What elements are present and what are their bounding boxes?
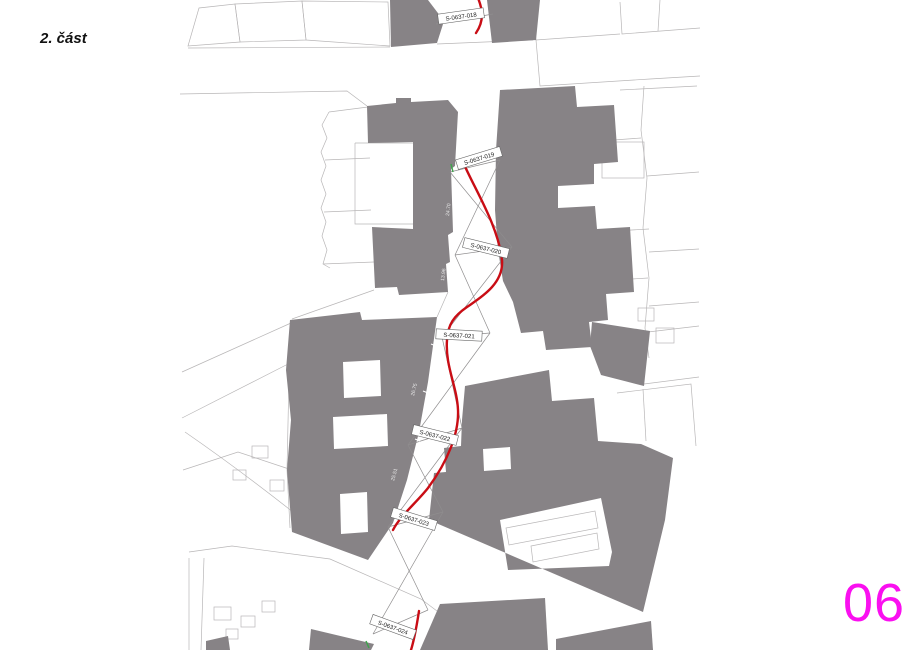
building-footprint: [420, 598, 548, 650]
building-footprint: [495, 86, 634, 350]
part-label: 2. část: [40, 30, 87, 47]
building-footprint: [390, 0, 444, 47]
station-label: S-0637-021: [436, 329, 482, 341]
building-footprint: [309, 629, 374, 650]
facade-tick: [404, 491, 409, 493]
building-footprint: [206, 636, 230, 650]
building-footprints: [206, 0, 673, 650]
building-footprint: [487, 0, 540, 43]
station-label: S-0637-022: [411, 425, 458, 446]
station-label: S-0637-019: [456, 146, 503, 169]
station-label: S-0637-018: [438, 8, 485, 24]
building-footprint: [556, 621, 653, 650]
building-footprint: [367, 98, 458, 295]
sheet-number: 06: [843, 576, 905, 630]
building-footprint: [590, 322, 650, 386]
building-footprint: [429, 370, 673, 612]
map-sheet: 24.70 13.96 26.75 25.51 S-0637-018 S-063…: [0, 0, 919, 650]
map-canvas: 24.70 13.96 26.75 25.51 S-0637-018 S-063…: [0, 0, 919, 650]
